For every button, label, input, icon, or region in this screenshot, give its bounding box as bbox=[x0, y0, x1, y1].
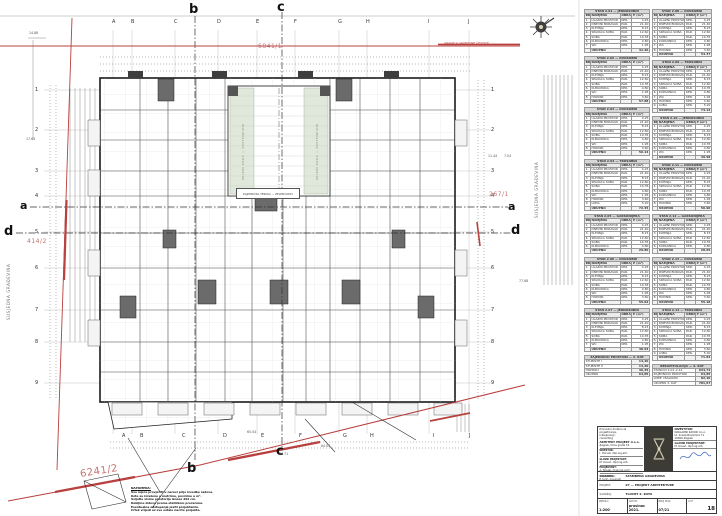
content-row: SADRŽAJ: TLOCRT 2. KATA bbox=[598, 490, 716, 499]
grid-number-right: 7 bbox=[491, 307, 494, 313]
grid-number-left: 2 bbox=[35, 127, 38, 133]
building-label: GRAĐEVINA: bbox=[598, 475, 626, 478]
grid-letter-top: G bbox=[338, 19, 342, 25]
investor-info: INVESTITOR: NAKLADNI ZAVOD d.o.o.Ul. kne… bbox=[673, 427, 716, 441]
number-label: BROJ PROJ. bbox=[659, 500, 686, 503]
schedule-table: STAN 2.07 — JEDNOSOBNIBR.NAMJENAOBRADAP … bbox=[584, 308, 650, 352]
dimension-text: 64.05 bbox=[321, 444, 330, 448]
boundary-label: GRANICA GRAĐEVNE ČESTICE bbox=[444, 41, 489, 45]
company-staff-row: DIREKTOR:I. Horvat, dipl.ing.arh. bbox=[600, 448, 643, 455]
company-staff-row: GLAVNI PROJEKTANT:M. Kovač, dipl.ing.arh… bbox=[600, 456, 643, 463]
notes-block: NAPOMENA: Sve mjere provjeriti u naravi … bbox=[131, 487, 215, 513]
grid-number-left: 9 bbox=[35, 380, 38, 386]
title-block: Privredno društvo zaprojektiranje,inženj… bbox=[597, 426, 717, 514]
grid-letter-bottom: A bbox=[122, 433, 125, 439]
investor-line: 10000 Zagreb bbox=[675, 437, 715, 440]
grid-letter-top: E bbox=[256, 19, 259, 25]
section-marker-b-top: b bbox=[189, 2, 198, 17]
signature-area bbox=[673, 449, 716, 463]
grid-letter-bottom: I bbox=[433, 433, 434, 439]
grid-letter-bottom: G bbox=[343, 433, 347, 439]
dimension-text: 11.44 bbox=[488, 154, 497, 158]
project-label: PROJEKT: bbox=[598, 484, 626, 487]
content-label: SADRŽAJ: bbox=[598, 493, 626, 496]
date-value: prosinac 2021. bbox=[629, 504, 656, 512]
grid-letter-top: A bbox=[112, 19, 115, 25]
schedule-table: STAN 2.12 — GARSONIJERABR.NAMJENAOBRADAP… bbox=[652, 214, 712, 254]
note-line: Crtež vrijedi uz sve ostale nacrte proje… bbox=[131, 509, 215, 513]
section-marker-b-bottom: b bbox=[187, 461, 196, 476]
grid-number-right: 6 bbox=[491, 265, 494, 271]
grid-letter-top: B bbox=[131, 19, 134, 25]
schedule-table: STAN 2.14 — TROSOBNIBR.NAMJENAOBRADAP (m… bbox=[652, 308, 712, 361]
grid-number-left: 7 bbox=[35, 307, 38, 313]
schedule-table: STAN 2.09 — TROSOBNIBR.NAMJENAOBRADAP (m… bbox=[652, 60, 712, 113]
dimension-text: 84.71 bbox=[279, 452, 288, 456]
grid-number-left: 1 bbox=[35, 87, 38, 93]
grid-number-left: 4 bbox=[35, 193, 38, 199]
green-roof-label-left: ZELENI KROV — EKSTENZIVNI bbox=[241, 123, 245, 180]
number-value: 07/21 bbox=[659, 508, 686, 512]
grid-number-right: 3 bbox=[491, 168, 494, 174]
schedule-table: STAN 2.13 — DVOSOBNIBR.NAMJENAOBRADAP (m… bbox=[652, 257, 712, 305]
schedule-table: STAN 2.08 — DVOSOBNIBR.NAMJENAOBRADAP (m… bbox=[652, 9, 712, 57]
dimension-text: 17.63 bbox=[26, 137, 35, 141]
grid-letter-top: J bbox=[468, 19, 469, 25]
schedule-table: STAN 2.10 — JEDNOSOBNIBR.NAMJENAOBRADAP … bbox=[652, 116, 712, 160]
notes-title: NAPOMENA: bbox=[131, 487, 215, 491]
grid-number-left: 8 bbox=[35, 339, 38, 345]
schedule-column-1: STAN 2.01 — JEDNOSOBNIBR.NAMJENAOBRADAP … bbox=[584, 9, 650, 377]
sheet-label: LIST bbox=[688, 500, 715, 503]
grid-letter-bottom: E bbox=[261, 433, 264, 439]
signature-icon bbox=[678, 451, 712, 462]
number-cell: BROJ PROJ. 07/21 bbox=[658, 499, 688, 513]
schedule-table: ZAJEDNIČKI PROSTORI — 2. KATSTUBIŠTE I14… bbox=[584, 355, 650, 377]
grid-number-left: 6 bbox=[35, 265, 38, 271]
designer-info: GLAVNI PROJEKTANT: M. Kovač, dipl.ing.ar… bbox=[673, 441, 716, 449]
grid-letter-top: I bbox=[428, 19, 429, 25]
schedule-table: STAN 2.03 — DVOSOBNIBR.NAMJENAOBRADAP (m… bbox=[584, 107, 650, 155]
grid-letter-bottom: B bbox=[140, 433, 143, 439]
grid-number-right: 5 bbox=[491, 229, 494, 235]
grid-letter-bottom: F bbox=[299, 433, 302, 439]
grid-number-left: 3 bbox=[35, 168, 38, 174]
section-marker-d-right: d bbox=[511, 223, 520, 238]
schedule-table: STAN 2.11 — DVOSOBNIBR.NAMJENAOBRADAP (m… bbox=[652, 163, 712, 211]
section-marker-c-top: c bbox=[277, 0, 285, 15]
schedule-table: STAN 2.01 — JEDNOSOBNIBR.NAMJENAOBRADAP … bbox=[584, 9, 650, 53]
content-value: TLOCRT 2. KATA bbox=[626, 492, 653, 496]
grid-letter-top: C bbox=[174, 19, 178, 25]
sheet-value: 18 bbox=[688, 506, 715, 512]
grid-letter-top: D bbox=[217, 19, 221, 25]
scale-cell: MJERILO 1:200 bbox=[598, 499, 628, 513]
grid-number-right: 9 bbox=[491, 380, 494, 386]
schedule-table: REKAPITULACIJA — 2. KATSTANOVI 2.01–2.14… bbox=[652, 364, 712, 386]
schedule-table: STAN 2.04 — TROSOBNIBR.NAMJENAOBRADAP (m… bbox=[584, 159, 650, 212]
scale-label: MJERILO bbox=[599, 500, 626, 503]
building-row: GRAĐEVINA: STAMBENA GRAĐEVINA bbox=[598, 472, 716, 481]
dimension-text: 7.04 bbox=[504, 154, 511, 158]
grid-letter-bottom: C bbox=[182, 433, 186, 439]
schedule-table: STAN 2.06 — DVOSOBNIBR.NAMJENAOBRADAP (m… bbox=[584, 257, 650, 305]
grid-letter-top: H bbox=[366, 19, 370, 25]
scale-value: 1:200 bbox=[599, 508, 626, 512]
company-logo bbox=[645, 427, 673, 471]
grid-letter-bottom: H bbox=[370, 433, 374, 439]
parcel-number-left: 414/2 bbox=[27, 238, 47, 245]
titleblock-bottom-strip: MJERILO 1:200 DATUM prosinac 2021. BROJ … bbox=[598, 499, 716, 513]
sheet-cell: LIST 18 bbox=[687, 499, 716, 513]
grid-number-right: 4 bbox=[491, 193, 494, 199]
section-marker-d-left: d bbox=[4, 224, 13, 239]
courtyard-label: ZAJEDNIČKA TERASA — ZELENI KROV bbox=[236, 188, 300, 199]
grid-number-left: 5 bbox=[35, 229, 38, 235]
company-info: Privredno društvo zaprojektiranje,inženj… bbox=[598, 427, 645, 471]
schedule-table: STAN 2.02 — DVOSOBNIBR.NAMJENAOBRADAP (m… bbox=[584, 56, 650, 104]
dimension-text: 65.04 bbox=[247, 430, 256, 434]
date-label: DATUM bbox=[629, 500, 656, 503]
date-cell: DATUM prosinac 2021. bbox=[628, 499, 658, 513]
grid-number-right: 8 bbox=[491, 339, 494, 345]
green-roof-label-right: ZELENI KROV — EKSTENZIVNI bbox=[315, 123, 319, 180]
section-marker-a-right: a bbox=[508, 200, 515, 213]
neighbor-building-label-right: SUSJEDNA GRAĐEVINA bbox=[534, 162, 539, 218]
section-marker-a-left: a bbox=[20, 199, 27, 212]
grid-letter-bottom: J bbox=[469, 433, 470, 439]
project-row: PROJEKT: 07 — PROJEKT ARHITEKTURE bbox=[598, 481, 716, 490]
dimension-text: 77.88 bbox=[519, 279, 528, 283]
grid-letter-top: F bbox=[294, 19, 297, 25]
company-address: Zagreb, Ulica grada 15 bbox=[600, 444, 643, 447]
neighbor-building-label-left: SUSJEDNA GRAĐEVINA bbox=[6, 264, 11, 320]
dimension-text: 14.88 bbox=[29, 31, 38, 35]
parcel-number-top: 6841/1 bbox=[258, 43, 282, 50]
parcel-number-bottom: 6241/2 bbox=[79, 463, 118, 480]
grid-number-right: 2 bbox=[491, 127, 494, 133]
project-value: 07 — PROJEKT ARHITEKTURE bbox=[626, 483, 674, 487]
schedule-column-2: STAN 2.08 — DVOSOBNIBR.NAMJENAOBRADAP (m… bbox=[652, 9, 712, 386]
grid-letter-bottom: D bbox=[223, 433, 227, 439]
schedule-table: STAN 2.05 — GARSONIJERABR.NAMJENAOBRADAP… bbox=[584, 214, 650, 254]
designer-name: M. Kovač, dipl.ing.arh. bbox=[675, 445, 715, 448]
building-value: STAMBENA GRAĐEVINA bbox=[626, 474, 665, 478]
hourglass-logo-icon bbox=[650, 436, 668, 462]
grid-number-right: 1 bbox=[491, 87, 494, 93]
